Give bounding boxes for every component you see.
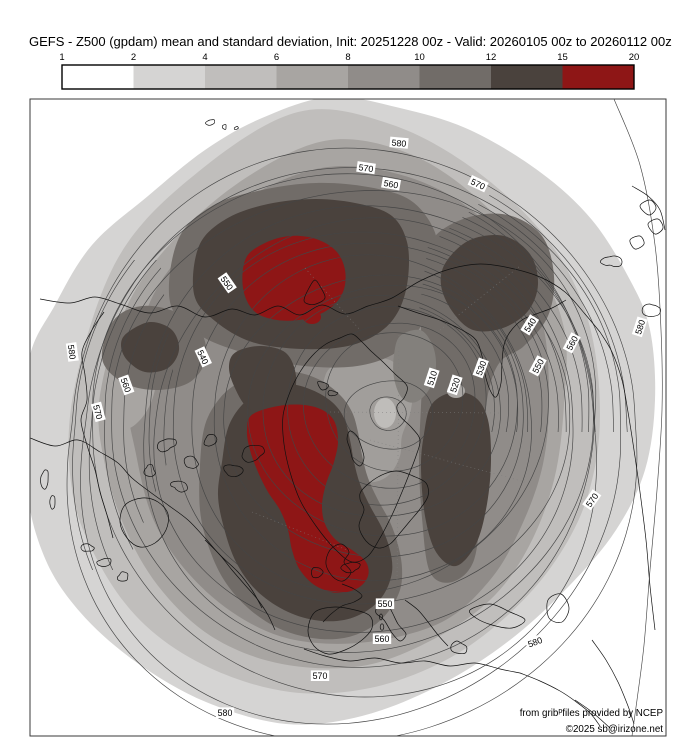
svg-text:GEFS - Z500 (gpdam) mean and s: GEFS - Z500 (gpdam) mean and standard de…: [29, 34, 672, 49]
svg-text:580: 580: [218, 708, 233, 718]
svg-text:570: 570: [358, 162, 374, 174]
svg-text:1: 1: [59, 52, 64, 63]
svg-text:560: 560: [375, 634, 390, 644]
svg-text:20: 20: [629, 52, 640, 63]
svg-text:from gribpfiles provided by NC: from gribpfiles provided by NCEP: [520, 708, 664, 719]
svg-text:550: 550: [378, 599, 393, 609]
svg-text:10: 10: [414, 52, 425, 63]
svg-text:4: 4: [202, 52, 207, 63]
svg-text:15: 15: [557, 52, 568, 63]
svg-text:8: 8: [345, 52, 350, 63]
svg-text:570: 570: [313, 671, 328, 681]
svg-text:6: 6: [274, 52, 279, 63]
svg-text:580: 580: [66, 344, 78, 360]
svg-text:©2025 sb@irizone.net: ©2025 sb@irizone.net: [566, 724, 664, 735]
svg-text:2: 2: [131, 52, 136, 63]
svg-text:580: 580: [391, 138, 407, 149]
svg-text:12: 12: [486, 52, 497, 63]
